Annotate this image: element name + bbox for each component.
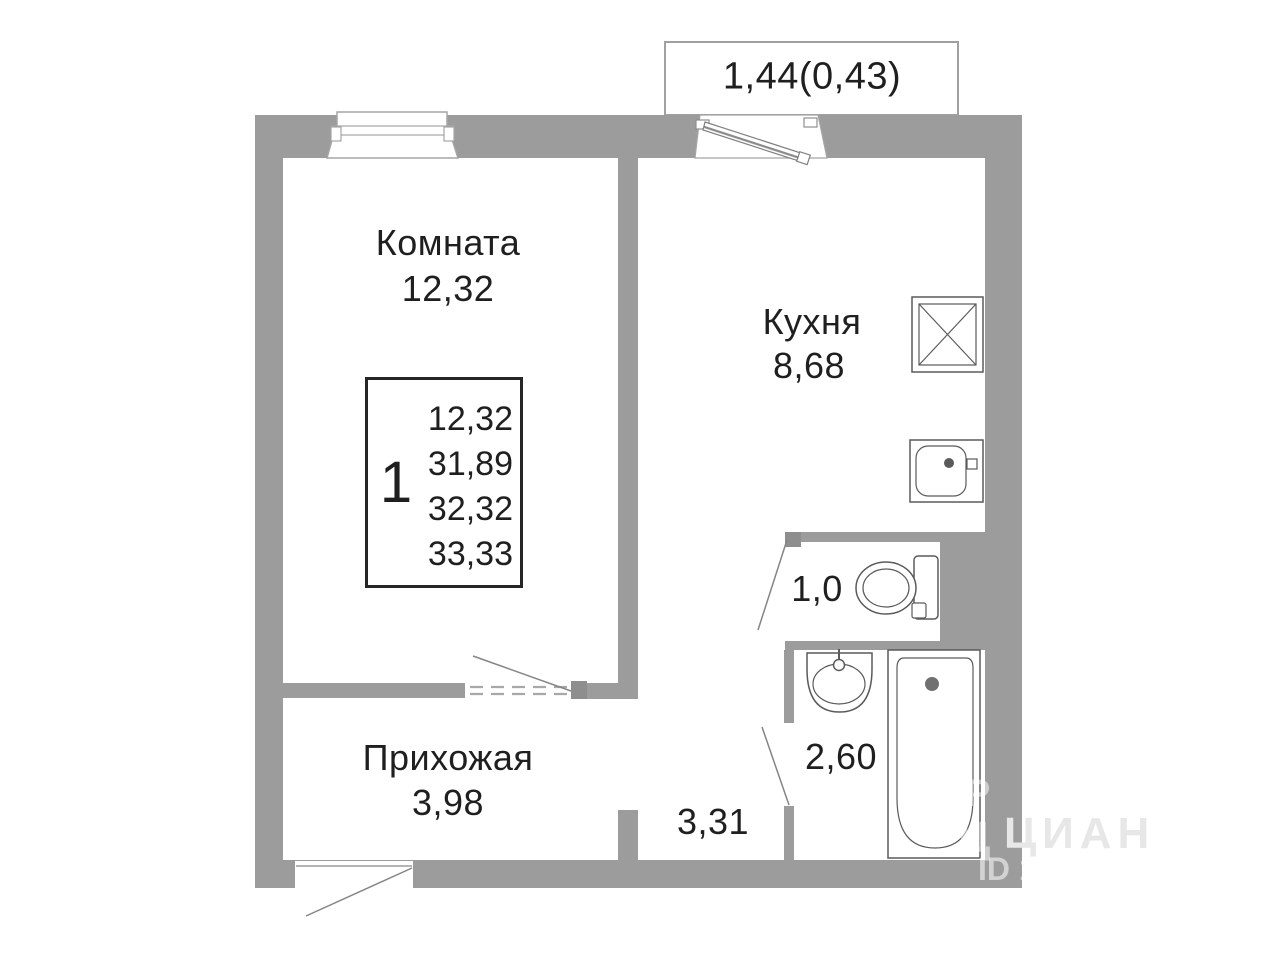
kitchen-sink-icon: [910, 440, 983, 502]
wc-area-label: 1,0: [791, 568, 843, 610]
corridor-area-label: 3,31: [677, 801, 749, 843]
floor-plan: Р Ц ЦИАН ID 1 1,44(0,43) Комната 12,32 К…: [0, 0, 1280, 960]
balcony-area-label: 1,44(0,43): [723, 56, 901, 99]
balcony-door-icon: [695, 115, 827, 165]
area-value-living: 12,32: [424, 397, 513, 442]
apartment-info-box: 1 12,32 31,89 32,32 33,33: [365, 377, 523, 588]
area-value-2: 31,89: [424, 442, 513, 487]
entrance-door-icon: [295, 861, 413, 916]
watermark-letter: Р: [965, 773, 990, 815]
hallway-area-label: 3,98: [412, 782, 484, 824]
wc-door-icon: [758, 540, 787, 630]
washbasin-icon: [807, 649, 872, 712]
area-value-3: 32,32: [424, 487, 513, 532]
room-door-icon: [470, 656, 571, 694]
area-values: 12,32 31,89 32,32 33,33: [424, 389, 520, 577]
hallway-name-label: Прихожая: [363, 737, 534, 779]
rooms-count: 1: [368, 449, 424, 516]
room-name-label: Комната: [376, 222, 520, 264]
bathroom-area-label: 2,60: [805, 736, 877, 778]
window-icon: [327, 112, 458, 158]
floor-plan-drawing: Р Ц ЦИАН ID 1: [0, 0, 1280, 960]
stove-icon: [912, 297, 983, 372]
watermark: Р Ц ЦИАН ID 1: [958, 773, 1155, 887]
kitchen-area-label: 8,68: [773, 345, 845, 387]
toilet-icon: [856, 556, 938, 619]
room-area-label: 12,32: [402, 268, 495, 310]
bathroom-door-icon: [762, 727, 789, 805]
watermark-id: ID 1: [978, 851, 1037, 887]
kitchen-name-label: Кухня: [763, 301, 862, 343]
area-value-total: 33,33: [424, 532, 513, 577]
